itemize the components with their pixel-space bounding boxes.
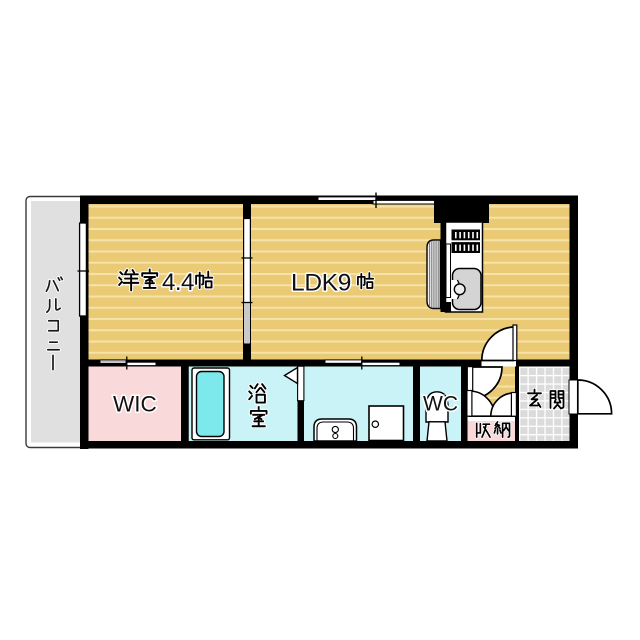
svg-text:4.4: 4.4 bbox=[162, 269, 194, 296]
svg-text:WIC: WIC bbox=[113, 392, 157, 417]
svg-text:LDK9: LDK9 bbox=[291, 270, 351, 297]
svg-text:WC: WC bbox=[423, 393, 458, 416]
